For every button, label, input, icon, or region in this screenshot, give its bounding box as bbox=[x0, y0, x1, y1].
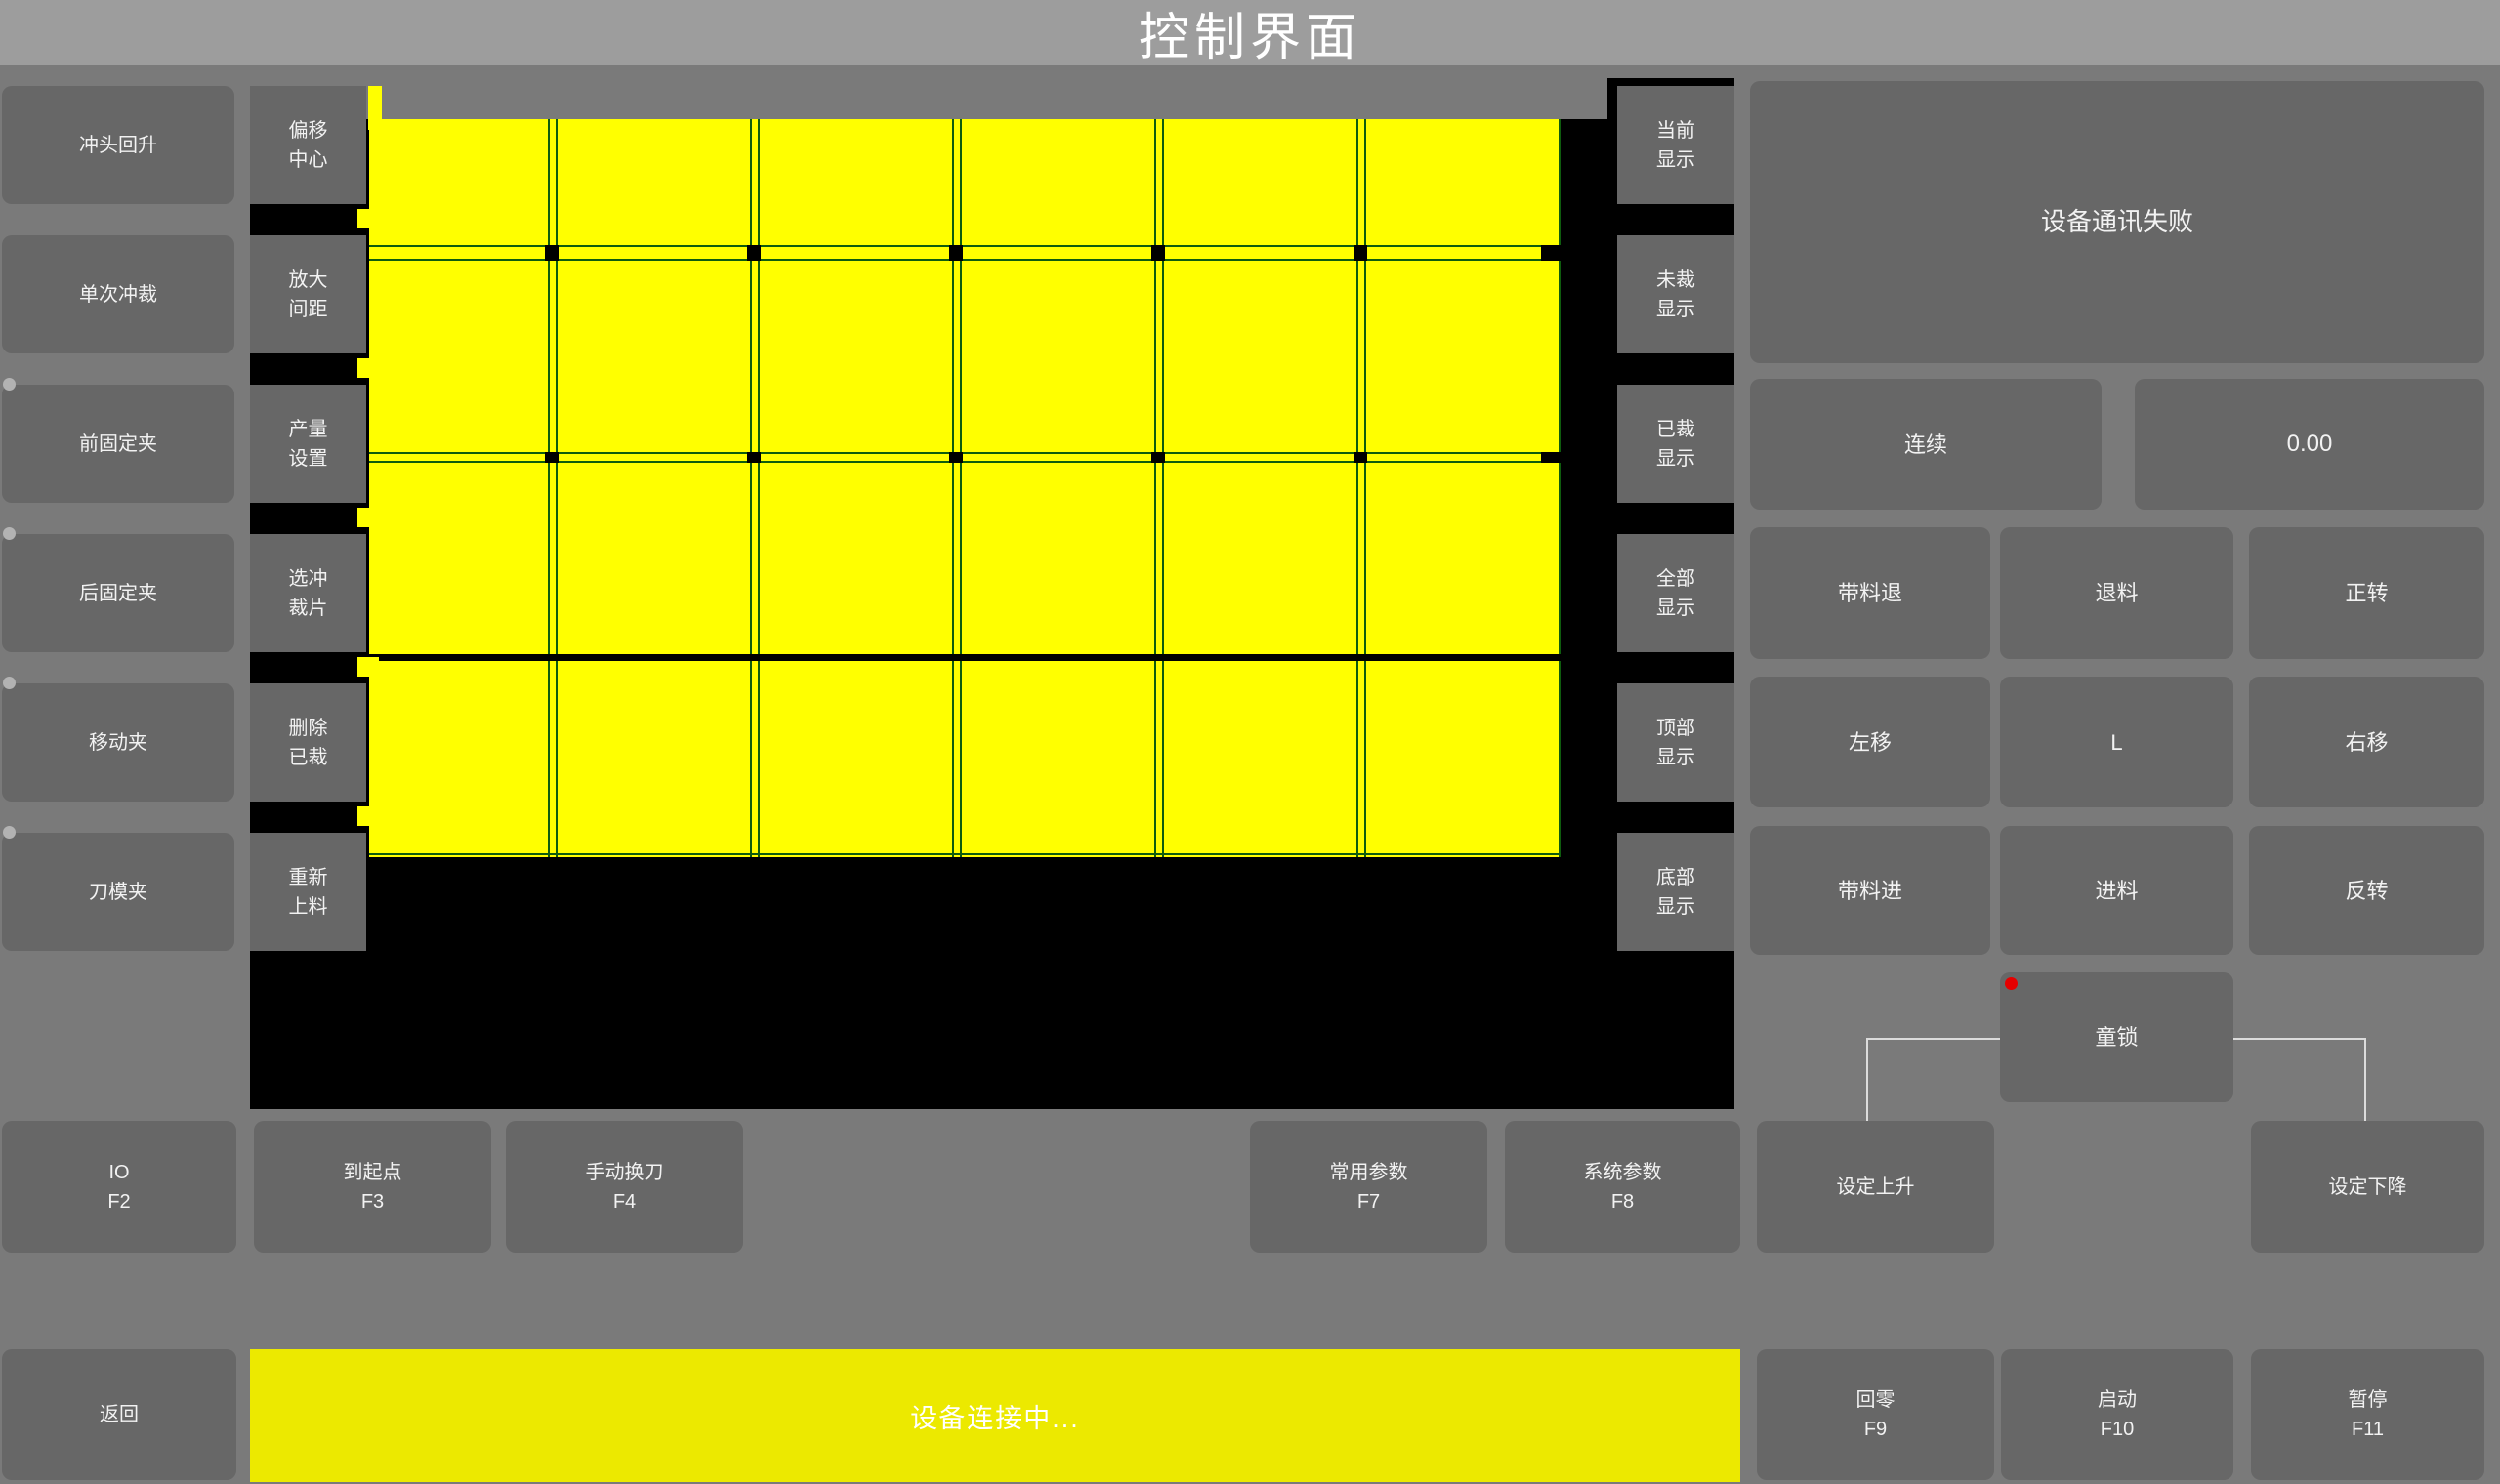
piece-separator-line bbox=[1364, 82, 1366, 857]
show-top-button[interactable]: 顶部 显示 bbox=[1617, 683, 1734, 802]
piece-separator-line bbox=[758, 82, 760, 857]
zoom-spacing-button[interactable]: 放大 间距 bbox=[250, 235, 366, 353]
reverse-rotation-button[interactable]: 反转 bbox=[2249, 826, 2484, 955]
canvas-top-cover bbox=[250, 78, 1607, 119]
show-bottom-button[interactable]: 底部 显示 bbox=[1617, 833, 1734, 951]
cut-junction-mark bbox=[1354, 452, 1367, 463]
cut-junction-mark bbox=[545, 245, 559, 261]
cut-junction-mark bbox=[747, 245, 761, 261]
cut-layout-canvas[interactable] bbox=[250, 78, 1734, 1109]
value-display: 0.00 bbox=[2135, 379, 2484, 510]
delete-cut-button[interactable]: 删除 已裁 bbox=[250, 683, 366, 802]
piece-separator-line bbox=[952, 82, 954, 857]
move-left-button[interactable]: 左移 bbox=[1750, 677, 1990, 807]
feed-material-button[interactable]: 进料 bbox=[2000, 826, 2233, 955]
cut-junction-mark bbox=[747, 452, 761, 463]
rear-clamp-button[interactable]: 后固定夹 bbox=[2, 534, 234, 652]
row-separator-dark bbox=[369, 654, 1561, 661]
forward-rotation-button[interactable]: 正转 bbox=[2249, 527, 2484, 659]
discharge-button[interactable]: 退料 bbox=[2000, 527, 2233, 659]
page-title: 控制界面 bbox=[1139, 0, 1361, 69]
bracket-line-left-h bbox=[1866, 1038, 2000, 1040]
feed-with-material-button[interactable]: 带料进 bbox=[1750, 826, 1990, 955]
select-piece-button[interactable]: 选冲 裁片 bbox=[250, 534, 366, 652]
moving-clamp-button[interactable]: 移动夹 bbox=[2, 683, 234, 802]
punch-up-button[interactable]: 冲头回升 bbox=[2, 86, 234, 204]
piece-separator-line bbox=[960, 82, 962, 857]
pause-f11-button[interactable]: 暂停 F11 bbox=[2251, 1349, 2484, 1480]
common-params-f7-button[interactable]: 常用参数 F7 bbox=[1250, 1121, 1487, 1253]
cut-junction-mark bbox=[949, 452, 963, 463]
moving-clamp-indicator-icon bbox=[3, 677, 16, 689]
die-clamp-indicator-icon bbox=[3, 826, 16, 839]
piece-separator-line bbox=[750, 82, 752, 857]
start-f10-button[interactable]: 启动 F10 bbox=[2001, 1349, 2233, 1480]
front-clamp-button[interactable]: 前固定夹 bbox=[2, 385, 234, 503]
child-lock-button[interactable]: 童锁 bbox=[2000, 972, 2233, 1102]
rear-clamp-indicator-icon bbox=[3, 527, 16, 540]
cut-junction-mark bbox=[949, 245, 963, 261]
offset-center-button[interactable]: 偏移 中心 bbox=[250, 86, 366, 204]
cut-junction-mark bbox=[1541, 245, 1561, 261]
comm-status-message: 设备通讯失败 bbox=[1750, 81, 2484, 363]
edge-web-notch bbox=[357, 358, 379, 378]
piece-edge-line bbox=[369, 853, 1561, 855]
home-f9-button[interactable]: 回零 F9 bbox=[1757, 1349, 1994, 1480]
cut-junction-mark bbox=[1354, 245, 1367, 261]
piece-separator-line bbox=[556, 82, 558, 857]
io-f2-button[interactable]: IO F2 bbox=[2, 1121, 236, 1253]
piece-separator-line bbox=[1356, 82, 1358, 857]
manual-tool-change-f4-button[interactable]: 手动换刀 F4 bbox=[506, 1121, 743, 1253]
piece-separator-line bbox=[548, 82, 550, 857]
cut-junction-mark bbox=[1151, 245, 1165, 261]
bracket-line-right-h bbox=[2233, 1038, 2366, 1040]
mode-continuous-button[interactable]: 连续 bbox=[1750, 379, 2102, 510]
bracket-line-right-v bbox=[2364, 1038, 2366, 1122]
front-clamp-indicator-icon bbox=[3, 378, 16, 391]
show-all-button[interactable]: 全部 显示 bbox=[1617, 534, 1734, 652]
child-lock-indicator-icon bbox=[2005, 977, 2018, 990]
cut-junction-mark bbox=[1541, 452, 1561, 463]
show-current-button[interactable]: 当前 显示 bbox=[1617, 86, 1734, 204]
show-uncut-button[interactable]: 未裁 显示 bbox=[1617, 235, 1734, 353]
move-right-button[interactable]: 右移 bbox=[2249, 677, 2484, 807]
bracket-line-left-v bbox=[1866, 1038, 1868, 1121]
piece-separator-line bbox=[1154, 82, 1156, 857]
to-origin-f3-button[interactable]: 到起点 F3 bbox=[254, 1121, 491, 1253]
edge-web-notch bbox=[357, 508, 379, 527]
reload-material-button[interactable]: 重新 上料 bbox=[250, 833, 366, 951]
set-fall-button[interactable]: 设定下降 bbox=[2251, 1121, 2484, 1253]
system-params-f8-button[interactable]: 系统参数 F8 bbox=[1505, 1121, 1740, 1253]
header-bar: 控制界面 bbox=[0, 0, 2500, 65]
show-cut-button[interactable]: 已裁 显示 bbox=[1617, 385, 1734, 503]
edge-web-notch bbox=[357, 209, 379, 228]
status-bar: 设备连接中... bbox=[250, 1349, 1740, 1482]
cut-junction-mark bbox=[1151, 452, 1165, 463]
set-rise-button[interactable]: 设定上升 bbox=[1757, 1121, 1994, 1253]
piece-separator-line bbox=[1162, 82, 1164, 857]
output-settings-button[interactable]: 产量 设置 bbox=[250, 385, 366, 503]
edge-web-strip bbox=[368, 86, 382, 130]
back-button[interactable]: 返回 bbox=[2, 1349, 236, 1480]
single-punch-button[interactable]: 单次冲裁 bbox=[2, 235, 234, 353]
cut-junction-mark bbox=[545, 452, 559, 463]
feed-back-with-material-button[interactable]: 带料退 bbox=[1750, 527, 1990, 659]
edge-web-notch bbox=[357, 806, 379, 826]
piece-edge-line bbox=[1559, 82, 1561, 857]
die-clamp-button[interactable]: 刀模夹 bbox=[2, 833, 234, 951]
l-button[interactable]: L bbox=[2000, 677, 2233, 807]
edge-web-notch bbox=[357, 657, 379, 677]
